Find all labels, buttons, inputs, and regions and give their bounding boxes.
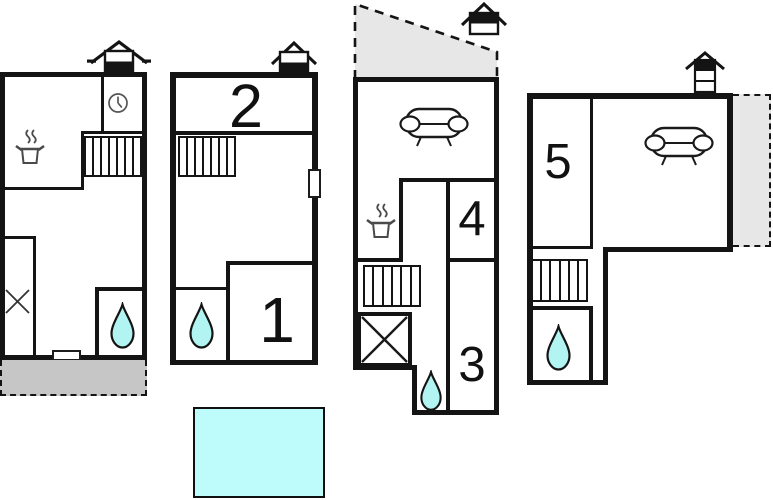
chimney-icon: [460, 1, 508, 36]
chimney-icon: [270, 40, 318, 75]
stairs: [531, 259, 588, 302]
wall: [226, 261, 230, 360]
wall: [170, 360, 318, 365]
wall: [589, 306, 593, 380]
wall: [412, 365, 417, 415]
room-label-4: 4: [447, 197, 497, 241]
room-label-2: 2: [216, 80, 276, 132]
wall: [358, 258, 403, 262]
room-label-3: 3: [447, 343, 497, 387]
water-drop-icon: [419, 370, 443, 412]
wall: [142, 72, 147, 360]
wall: [527, 380, 608, 385]
wall: [5, 187, 84, 190]
stove-icon: [366, 201, 396, 241]
water-drop-icon: [188, 302, 215, 350]
wall: [353, 77, 499, 82]
stove-icon: [15, 127, 45, 167]
water-drop-icon: [109, 302, 136, 350]
wall: [33, 236, 36, 355]
cross-mark-icon: [4, 288, 31, 315]
wall: [81, 131, 142, 134]
stairs: [178, 136, 236, 177]
stairs: [84, 136, 142, 177]
room-label-1: 1: [247, 293, 307, 347]
sofa-icon: [644, 120, 714, 168]
wall: [226, 261, 312, 265]
wall: [0, 72, 5, 360]
cross-mark-icon: [359, 314, 410, 365]
wall: [101, 77, 104, 133]
wall: [603, 247, 608, 385]
wall: [603, 247, 733, 252]
sofa-icon: [399, 102, 469, 148]
wall: [0, 72, 147, 77]
wall: [590, 99, 593, 249]
water-drop-icon: [545, 324, 572, 372]
wall: [527, 93, 733, 99]
door: [308, 169, 321, 198]
chimney-icon: [682, 50, 728, 93]
dashed-annex-area: [733, 94, 771, 247]
terrace-area: [0, 360, 147, 396]
room-label-5: 5: [533, 140, 583, 184]
wall: [533, 306, 593, 310]
chimney-icon: [87, 38, 151, 74]
wall: [176, 287, 226, 290]
swimming-pool: [193, 407, 325, 498]
wall: [95, 287, 99, 355]
wall: [312, 72, 318, 365]
wall: [170, 72, 176, 365]
stairs: [363, 265, 421, 307]
wall: [450, 258, 494, 262]
floor-plan: 2 1: [0, 0, 773, 500]
wall: [533, 246, 593, 249]
wall: [727, 93, 733, 252]
wall: [95, 287, 142, 291]
wall: [5, 236, 36, 239]
wall: [527, 93, 533, 385]
wall: [399, 178, 403, 262]
clock-icon: [107, 92, 129, 114]
